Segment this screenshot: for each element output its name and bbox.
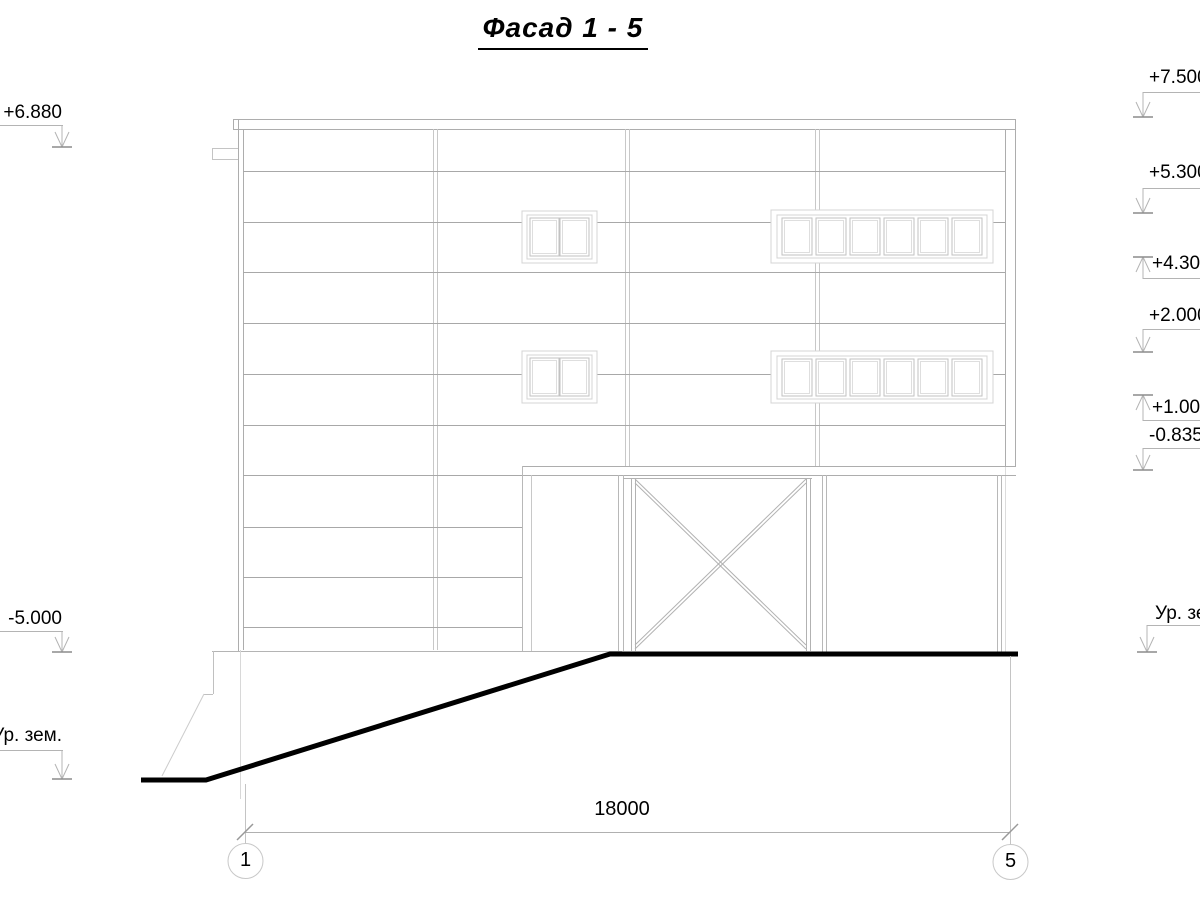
parapet-scupper bbox=[212, 148, 238, 160]
level-label-ground-right: Ур. зем. bbox=[1155, 604, 1200, 625]
first-floor-band bbox=[522, 467, 1016, 476]
ground-line bbox=[141, 654, 1018, 780]
level-marker-down-icon bbox=[0, 125, 72, 147]
ground-floor-columns bbox=[523, 466, 1002, 652]
level-label-plus4300: +4.300 bbox=[1152, 254, 1200, 275]
x-brace bbox=[623, 478, 812, 651]
level-label-minus5000: -5.000 bbox=[2, 609, 62, 630]
dimension-value: 18000 bbox=[572, 798, 672, 821]
window-two-pane-lower bbox=[522, 351, 597, 403]
ribbon-window-lower bbox=[771, 351, 993, 403]
level-label-plus6880: +6.880 bbox=[2, 103, 62, 124]
level-label-plus5300: +5.300 bbox=[1149, 163, 1200, 184]
level-marker-down-icon bbox=[0, 631, 72, 652]
level-marker-down-icon bbox=[1133, 448, 1200, 470]
level-marker-down-icon bbox=[1133, 188, 1200, 213]
level-label-plus2000: +2.000 bbox=[1149, 306, 1200, 327]
level-label-ground-left: Ур. зем. bbox=[0, 726, 62, 747]
level-label-plus7500: +7.500 bbox=[1149, 68, 1200, 89]
level-marker-down-icon bbox=[1133, 329, 1200, 352]
axis-number-1: 1 bbox=[227, 849, 264, 872]
panel-dividers bbox=[434, 129, 820, 650]
elevation-drawing bbox=[0, 0, 1200, 900]
level-marker-down-icon bbox=[1133, 92, 1200, 117]
level-marker-down-icon bbox=[1137, 625, 1200, 652]
level-label-minus0835: -0.835 bbox=[1149, 426, 1200, 447]
level-marker-down-icon bbox=[0, 750, 72, 779]
axis-number-5: 5 bbox=[992, 850, 1029, 873]
facade-drawing-sheet: Фасад 1 - 5 +6.880 -5.000 Ур. зем. +7.50… bbox=[0, 0, 1200, 900]
window-two-pane-upper bbox=[522, 211, 597, 263]
drawing-title-text: Фасад 1 - 5 bbox=[478, 12, 649, 50]
ribbon-window-upper bbox=[771, 210, 993, 263]
parapet-band bbox=[233, 119, 1016, 130]
level-label-plus1000: +1.000 bbox=[1152, 398, 1200, 419]
drawing-title: Фасад 1 - 5 bbox=[433, 12, 693, 50]
